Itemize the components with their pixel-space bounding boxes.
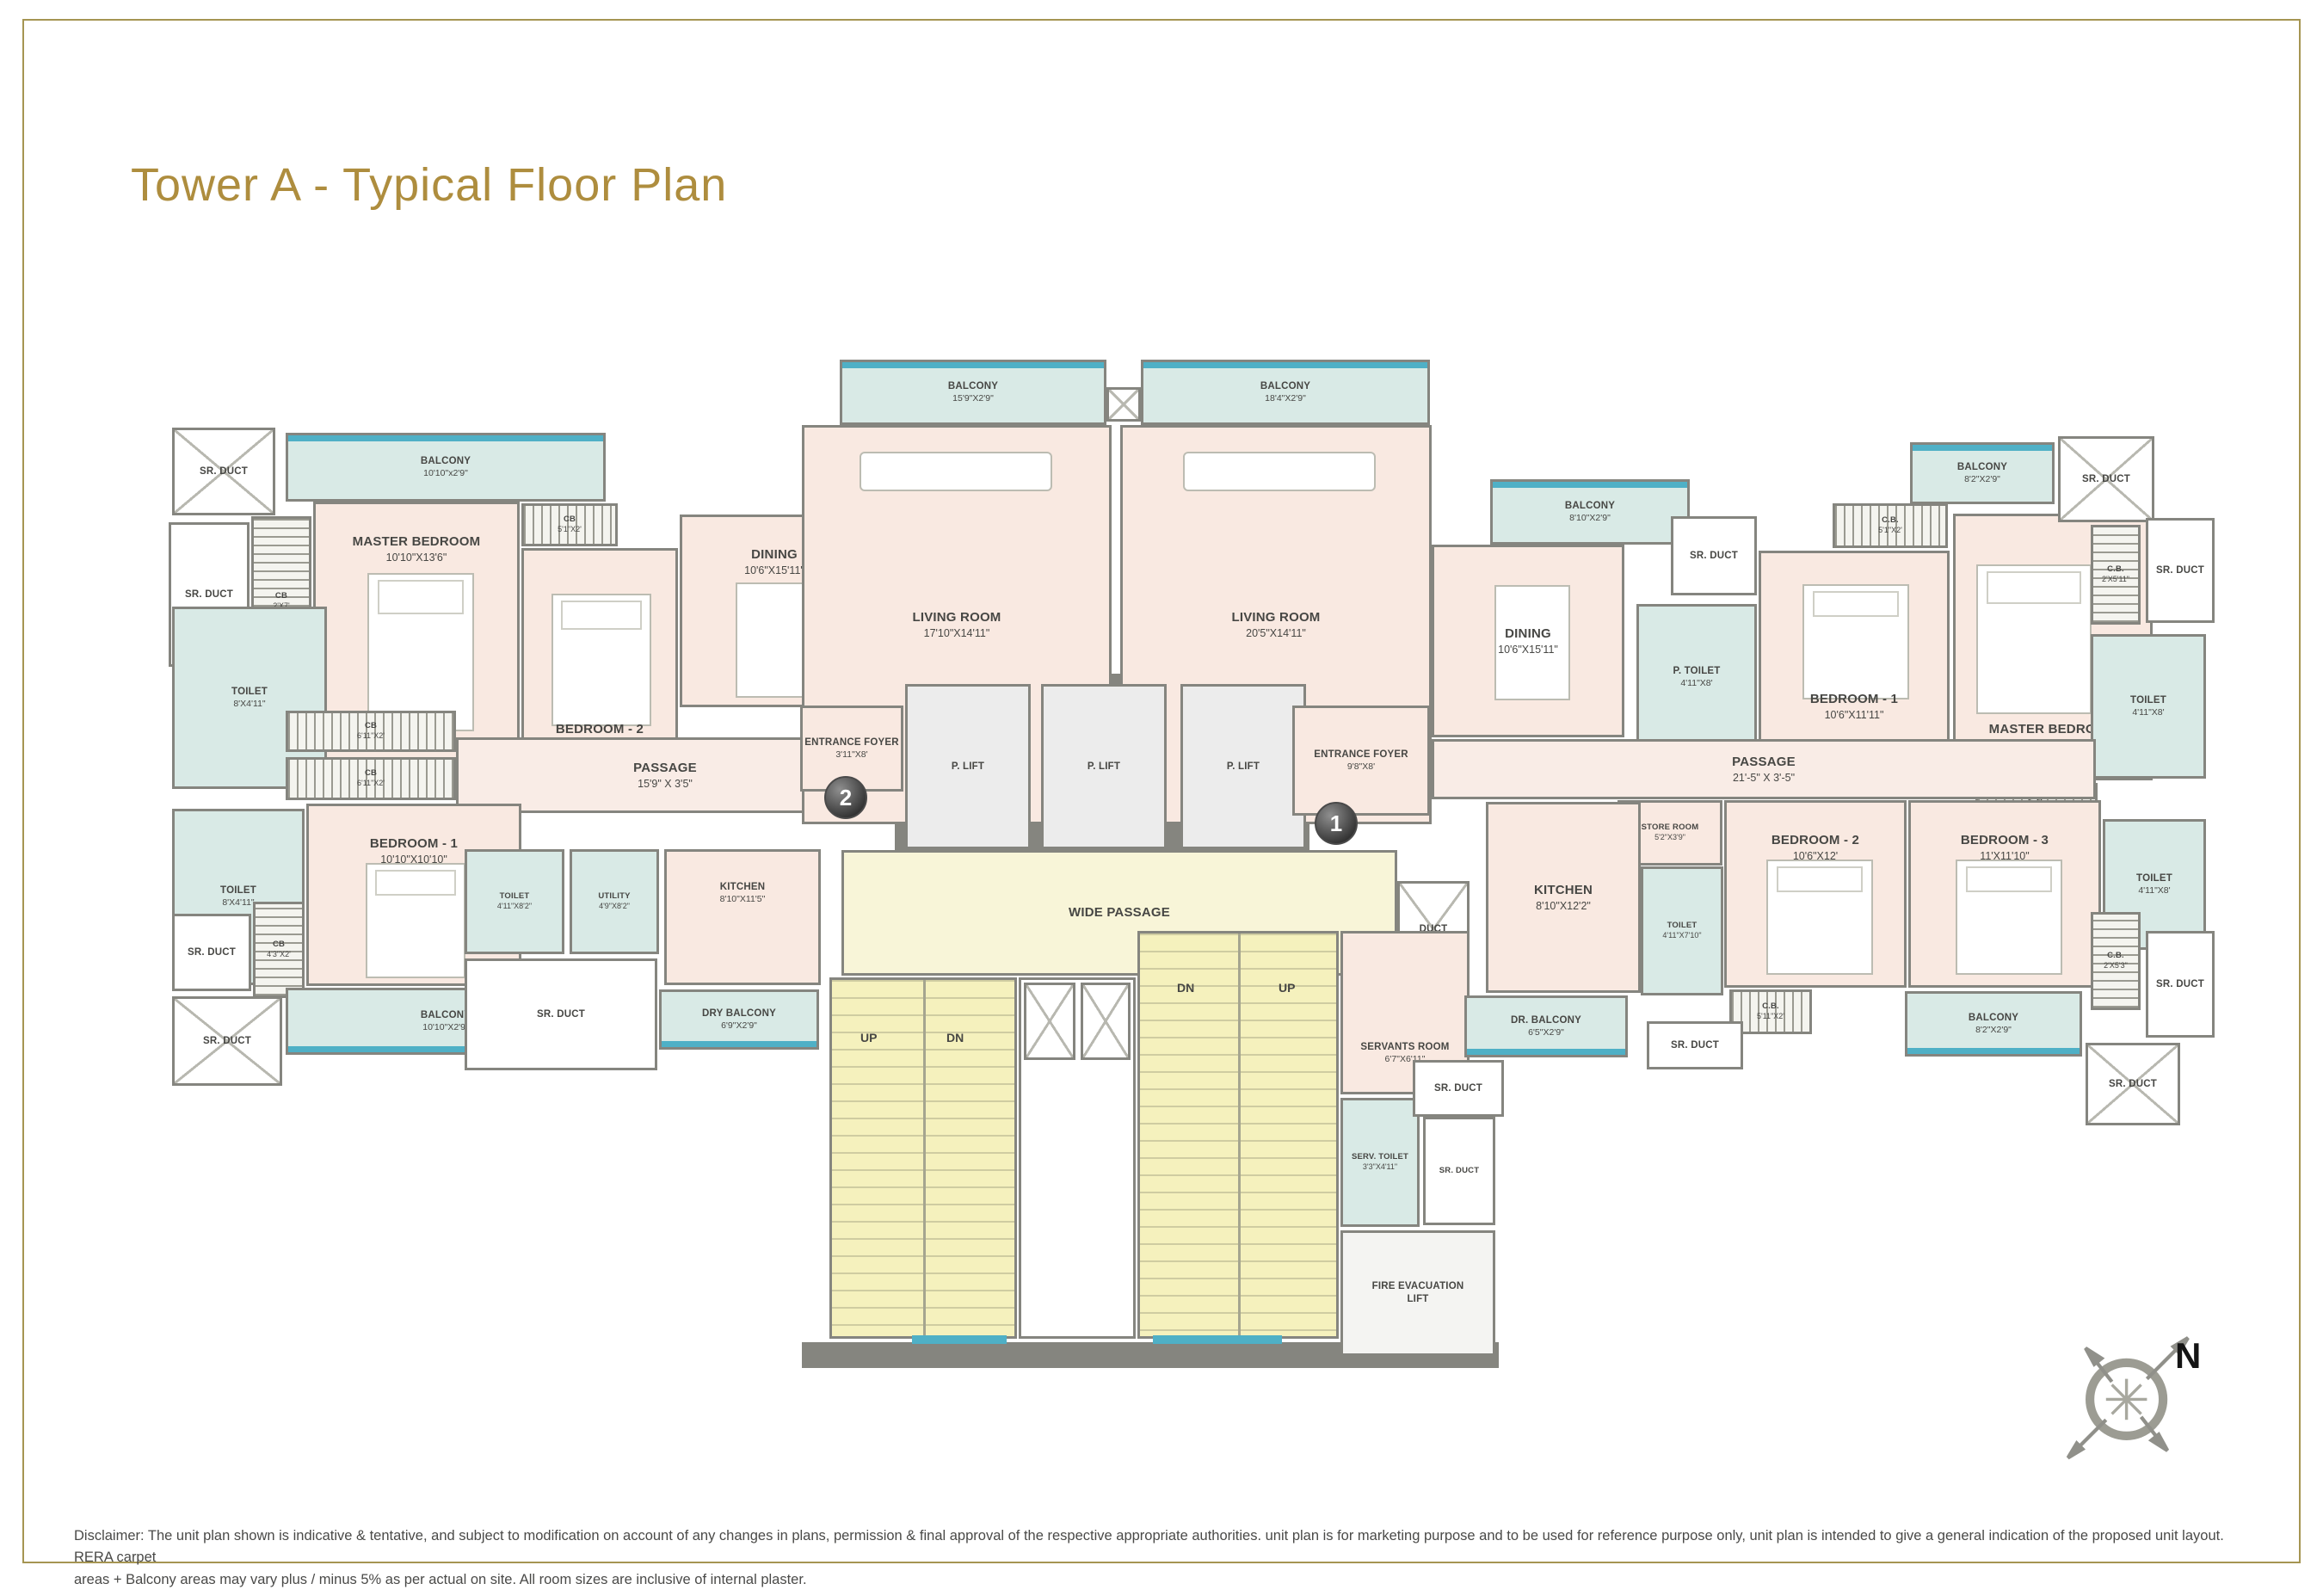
- room-name: WIDE PASSAGE: [1069, 904, 1170, 921]
- shaft-duct: [1024, 983, 1075, 1060]
- room-name: BEDROOM - 3: [1961, 832, 2049, 849]
- room-name: SR. DUCT: [537, 1008, 585, 1021]
- room-dims: 10'10"X13'6": [386, 551, 447, 564]
- room-utility: UTILITY4'9"X8'2": [570, 849, 659, 954]
- room-name: PASSAGE: [633, 760, 697, 777]
- room-name: CB: [365, 721, 377, 731]
- unit-2-badge: 2: [824, 776, 867, 819]
- room-dims: 4'11"X8': [1680, 678, 1712, 690]
- room-servant-toilet: SERV. TOILET3'3"X4'11": [1340, 1098, 1420, 1227]
- room-name: SR. DUCT: [185, 588, 233, 601]
- room-name: P. LIFT: [952, 761, 984, 773]
- shaft-duct: [1081, 983, 1131, 1060]
- room-name: BALCONY: [1565, 500, 1615, 513]
- room-sr-duct: SR. DUCT: [1423, 1117, 1495, 1225]
- room-dims: 20'5"X14'11": [1246, 626, 1306, 640]
- room-dims: 10'10"X2'9": [422, 1022, 469, 1034]
- room-dims: 8'10"X12'2": [1536, 899, 1591, 913]
- room-name: P. TOILET: [1673, 665, 1720, 678]
- room-dims: 8'X4'11": [222, 897, 254, 909]
- room-dining: DINING10'6"X15'11": [1432, 545, 1624, 737]
- room-name: LIVING ROOM: [912, 609, 1001, 626]
- room-dims: 10'6"X15'11": [1498, 643, 1558, 656]
- room-name: BEDROOM - 1: [1810, 691, 1898, 708]
- bed-furniture: [1976, 564, 2092, 714]
- room-toilet: TOILET4'11"X8'2": [465, 849, 564, 954]
- room-dims: 21'-5" X 3'-5": [1733, 771, 1795, 785]
- room-name: ENTRANCE FOYER: [1314, 749, 1408, 761]
- room-sr-duct: SR. DUCT: [172, 996, 282, 1086]
- bed-furniture: [1766, 860, 1873, 975]
- room-dims: 5'2"X3'9": [1654, 833, 1685, 843]
- room-sr-duct: SR. DUCT: [1647, 1021, 1743, 1069]
- bed-furniture: [366, 863, 465, 978]
- room-passage: PASSAGE21'-5" X 3'-5": [1432, 739, 2096, 799]
- room-sr-duct: SR. DUCT: [172, 914, 251, 991]
- room-name: DINING: [751, 546, 798, 564]
- room-dims: 2'X5'3": [2104, 961, 2128, 971]
- room-name: CB: [564, 515, 576, 525]
- dining-table-furniture: [736, 582, 811, 698]
- window-sill: [1153, 1335, 1282, 1344]
- room-dims: 2'X5'11": [2102, 575, 2129, 585]
- room-balcony: BALCONY8'2"X2'9": [1905, 991, 2082, 1057]
- room-cb-closet: C.B.2'X5'3": [2091, 912, 2141, 1010]
- room-name: BALCONY: [1260, 380, 1310, 393]
- room-name: DRY BALCONY: [702, 1008, 776, 1020]
- stairwell-right: [1137, 931, 1339, 1339]
- room-kitchen: KITCHEN8'10"X11'5": [664, 849, 821, 985]
- room-sr-duct: SR. DUCT: [2146, 518, 2215, 623]
- room-balcony: BALCONY8'2"X2'9": [1910, 442, 2055, 504]
- room-passenger-lift: P. LIFT: [1180, 684, 1306, 849]
- room-name: TOILET: [500, 891, 530, 902]
- room-balcony: BALCONY8'10"X2'9": [1490, 479, 1690, 545]
- room-name: CB: [273, 940, 285, 950]
- room-name: SR. DUCT: [2082, 473, 2130, 486]
- room-bedroom-3: BEDROOM - 311'X11'10": [1908, 800, 2101, 988]
- stair-dn-label: DN: [946, 1031, 964, 1044]
- room-toilet: TOILET4'11"X7'10": [1641, 866, 1723, 995]
- window-sill: [912, 1335, 1007, 1344]
- disclaimer-line-1: Disclaimer: The unit plan shown is indic…: [74, 1525, 2259, 1569]
- room-dims: 6'9"X2'9": [721, 1020, 757, 1032]
- room-dims: 10'10"x2'9": [423, 468, 468, 480]
- room-name: LIVING ROOM: [1231, 609, 1320, 626]
- room-name: BALCONY: [1957, 461, 2007, 474]
- room-sr-duct: SR. DUCT: [2086, 1043, 2180, 1125]
- room-name: SR. DUCT: [1671, 1039, 1719, 1052]
- room-name: P. LIFT: [1088, 761, 1120, 773]
- room-dims: 4'11"X7'10": [1662, 931, 1701, 941]
- room-name: P. LIFT: [1227, 761, 1260, 773]
- room-dims: 3'3"X4'11": [1363, 1162, 1397, 1173]
- room-dims: 10'6"X15'11": [744, 564, 804, 577]
- room-dims: 6'11"X2': [357, 779, 385, 789]
- room-name: FIRE EVACUATION LIFT: [1371, 1280, 1465, 1306]
- room-name: CB: [275, 591, 287, 601]
- room-sr-duct: SR. DUCT: [2146, 931, 2215, 1038]
- room-name: CB: [365, 768, 377, 779]
- room-dims: 3'11"X8': [835, 749, 867, 761]
- room-dims: 6'11"X2': [357, 731, 385, 742]
- room-name: C.B.: [1882, 515, 1899, 526]
- bed-furniture: [1956, 860, 2062, 975]
- compass-north-label: N: [2175, 1335, 2201, 1377]
- room-name: MASTER BEDROOM: [353, 533, 481, 551]
- room-name: SR. DUCT: [2156, 978, 2204, 991]
- room-sr-duct: SR. DUCT: [1413, 1060, 1504, 1117]
- room-dims: 4'9"X8'2": [599, 902, 630, 912]
- room-kitchen: KITCHEN8'10"X12'2": [1486, 802, 1641, 993]
- page-title: Tower A - Typical Floor Plan: [131, 158, 727, 212]
- room-dr-balcony: DR. BALCONY6'5"X2'9": [1464, 995, 1628, 1057]
- room-dims: 8'2"X2'9": [1964, 474, 2000, 486]
- room-sr-duct: SR. DUCT: [465, 958, 657, 1070]
- stairwell-left: [829, 977, 1017, 1339]
- room-dims: 5'1"X2': [558, 525, 582, 535]
- bed-furniture: [367, 573, 474, 731]
- room-name: SERVANTS ROOM: [1360, 1041, 1449, 1054]
- room-cb-closet: CB5'1"X2': [521, 503, 618, 546]
- room-name: C.B.: [2107, 564, 2124, 575]
- room-name: BALCONY: [421, 455, 471, 468]
- room-name: BEDROOM - 1: [370, 835, 458, 853]
- room-cb-closet: CB6'11"X2': [286, 711, 456, 752]
- room-dims: 8'10"X11'5": [720, 894, 766, 906]
- room-name: TOILET: [220, 884, 256, 897]
- disclaimer-text: Disclaimer: The unit plan shown is indic…: [74, 1525, 2259, 1592]
- balcony-divider-duct: [1106, 387, 1141, 422]
- room-name: C.B.: [2107, 951, 2124, 961]
- room-name: SR. DUCT: [188, 946, 236, 959]
- room-dims: 4'11"X8'2": [497, 902, 532, 912]
- room-dims: 10'6"X12': [1793, 849, 1838, 863]
- room-name: STORE ROOM: [1642, 823, 1699, 833]
- room-cb-closet: CB4'3"X2': [253, 902, 305, 998]
- room-dims: 17'10"X14'11": [924, 626, 990, 640]
- room-dims: 8'10"X2'9": [1569, 513, 1611, 525]
- room-name: BALCONY: [421, 1009, 471, 1022]
- room-name: TOILET: [231, 686, 268, 699]
- room-balcony: BALCONY15'9"X2'9": [840, 360, 1106, 425]
- room-entrance-foyer-1: ENTRANCE FOYER9'8"X8': [1292, 706, 1430, 816]
- room-dims: 8'2"X2'9": [1975, 1025, 2012, 1037]
- stair-dn-label: DN: [1177, 981, 1194, 995]
- room-name: TOILET: [2136, 872, 2172, 885]
- room-name: C.B.: [1762, 1001, 1779, 1012]
- room-dims: 18'4"X2'9": [1265, 393, 1306, 405]
- room-dims: 10'6"X11'11": [1825, 708, 1884, 722]
- room-fire-evacuation-lift: FIRE EVACUATION LIFT: [1340, 1230, 1495, 1356]
- room-dims: 9'8"X8': [1347, 761, 1375, 773]
- unit-1-badge: 1: [1315, 802, 1358, 845]
- room-dims: 5'11"X2': [1757, 1012, 1784, 1022]
- room-dry-balcony: DRY BALCONY6'9"X2'9": [659, 989, 819, 1050]
- bed-furniture: [1802, 584, 1909, 699]
- sofa-furniture: [1183, 452, 1376, 491]
- room-sr-duct: SR. DUCT: [2058, 436, 2154, 522]
- room-name: TOILET: [1667, 921, 1698, 931]
- room-powder-toilet: P. TOILET4'11"X8': [1636, 604, 1757, 750]
- room-name: SERV. TOILET: [1352, 1152, 1408, 1162]
- room-name: PASSAGE: [1732, 754, 1796, 771]
- room-name: ENTRANCE FOYER: [804, 736, 899, 749]
- room-dims: 4'11"X8': [2138, 885, 2170, 897]
- room-cb-closet: CB6'11"X2': [286, 757, 456, 800]
- room-name: TOILET: [2130, 694, 2166, 707]
- room-dims: 15'9" X 3'5": [638, 777, 693, 791]
- room-bedroom-1: BEDROOM - 110'6"X11'11": [1759, 551, 1950, 750]
- stair-up-label: UP: [1279, 981, 1295, 995]
- bed-furniture: [551, 594, 651, 726]
- room-name: BALCONY: [948, 380, 998, 393]
- room-name: SR. DUCT: [1690, 550, 1738, 563]
- room-name: SR. DUCT: [203, 1035, 251, 1048]
- room-name: DINING: [1505, 625, 1551, 643]
- sofa-furniture: [860, 452, 1052, 491]
- room-toilet: TOILET4'11"X8': [2091, 634, 2206, 779]
- room-name: BALCONY: [1969, 1012, 2018, 1025]
- room-dims: 10'10"X10'10": [380, 853, 447, 866]
- room-dims: 6'5"X2'9": [1528, 1027, 1564, 1039]
- room-cb-closet: C.B.2'X5'11": [2091, 525, 2141, 625]
- room-dims: 5'1"X2': [1878, 526, 1902, 536]
- room-sr-duct: SR. DUCT: [1671, 516, 1757, 595]
- room-name: KITCHEN: [1534, 882, 1593, 899]
- room-cb-closet: C.B.5'1"X2': [1833, 503, 1948, 548]
- room-sr-duct: SR. DUCT: [172, 428, 275, 515]
- room-name: SR. DUCT: [2109, 1078, 2157, 1091]
- room-name: SR. DUCT: [1439, 1166, 1479, 1176]
- room-name: BEDROOM - 2: [556, 721, 644, 738]
- room-name: SR. DUCT: [2156, 564, 2204, 577]
- room-balcony: BALCONY18'4"X2'9": [1141, 360, 1430, 425]
- room-name: UTILITY: [598, 891, 630, 902]
- room-dims: 4'3"X2': [267, 950, 291, 960]
- room-name: KITCHEN: [720, 881, 766, 894]
- floor-plan-page: Tower A - Typical Floor Plan SR. DUCT BA…: [0, 0, 2323, 1596]
- room-name: SR. DUCT: [1434, 1082, 1482, 1095]
- room-dims: 15'9"X2'9": [952, 393, 994, 405]
- room-name: SR. DUCT: [200, 465, 248, 478]
- room-passenger-lift: P. LIFT: [1041, 684, 1167, 849]
- room-balcony: BALCONY10'10"x2'9": [286, 433, 606, 502]
- room-dims: 11'X11'10": [1980, 849, 2029, 863]
- room-passenger-lift: P. LIFT: [905, 684, 1031, 849]
- room-dims: 4'11"X8': [2132, 707, 2164, 719]
- room-dims: 8'X4'11": [233, 699, 265, 711]
- room-name: DR. BALCONY: [1511, 1014, 1581, 1027]
- stair-up-label: UP: [860, 1031, 877, 1044]
- disclaimer-line-2: areas + Balcony areas may vary plus / mi…: [74, 1569, 2259, 1592]
- room-name: BEDROOM - 2: [1772, 832, 1859, 849]
- room-bedroom-2: BEDROOM - 210'6"X12': [1724, 800, 1907, 988]
